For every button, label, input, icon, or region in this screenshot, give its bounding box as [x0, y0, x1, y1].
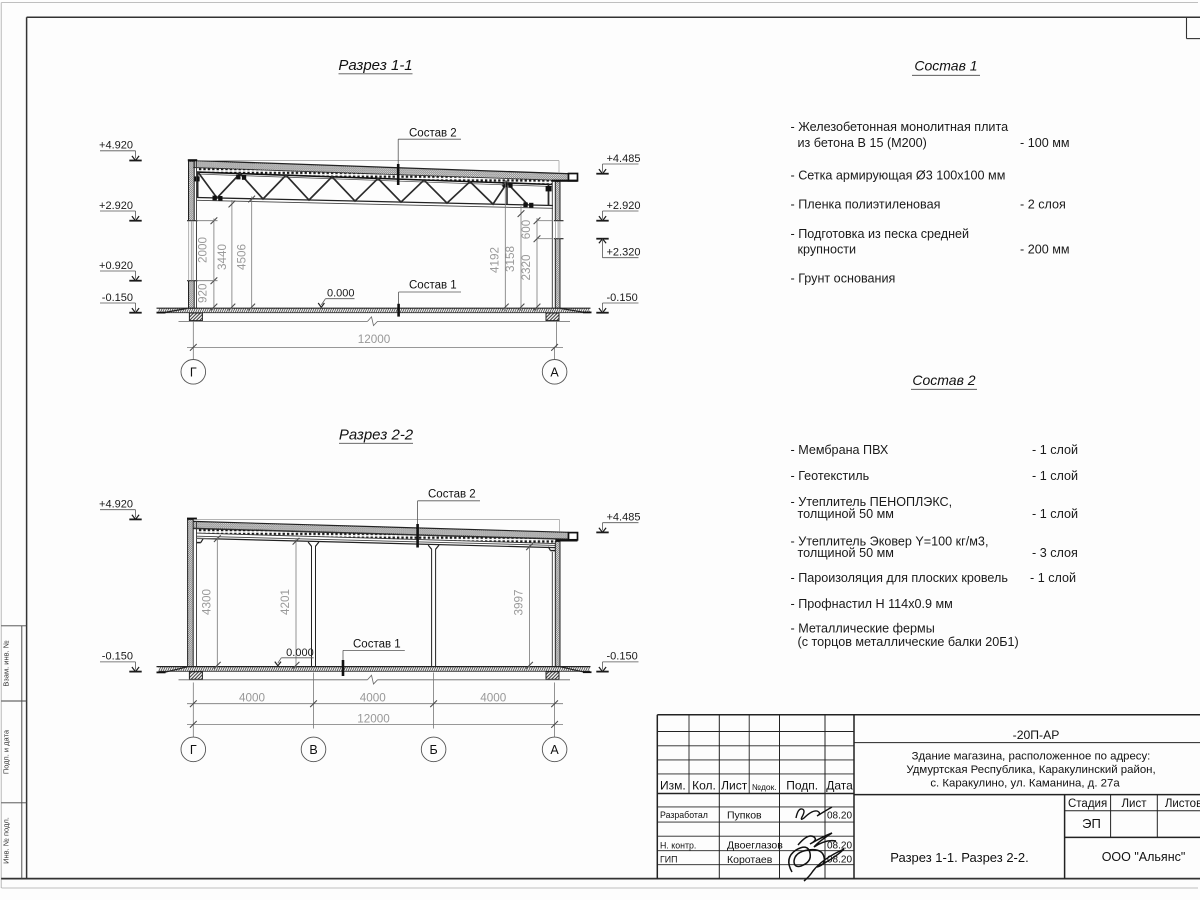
svg-text:Состав 1: Состав 1: [914, 58, 977, 74]
svg-text:+4.920: +4.920: [99, 140, 133, 152]
svg-text:4201: 4201: [279, 589, 292, 615]
svg-text:Б: Б: [429, 743, 437, 757]
svg-text:Состав 2: Состав 2: [409, 127, 457, 139]
svg-text:Лист: Лист: [1122, 798, 1148, 810]
svg-text:Лист: Лист: [721, 778, 748, 792]
svg-text:Г: Г: [190, 366, 197, 380]
svg-text:ООО "Альянс": ООО "Альянс": [1102, 850, 1186, 864]
svg-text:ГИП: ГИП: [660, 854, 677, 864]
svg-text:+2.320: +2.320: [607, 247, 641, 259]
svg-text:- Сетка армирующая Ø3 100х100: - Сетка армирующая Ø3 100х100 мм: [791, 169, 1006, 183]
svg-text:- 100 мм: - 100 мм: [1020, 136, 1070, 150]
svg-text:-0.150: -0.150: [102, 651, 133, 663]
svg-text:Пупков: Пупков: [727, 810, 762, 822]
svg-text:Инв. № подл.: Инв. № подл.: [2, 817, 11, 864]
svg-text:600: 600: [520, 219, 533, 239]
svg-text:920: 920: [197, 283, 210, 303]
svg-text:из бетона В 15 (М200): из бетона В 15 (М200): [791, 136, 927, 150]
svg-text:Разработал: Разработал: [660, 810, 708, 820]
svg-text:Коротаев: Коротаев: [727, 854, 773, 866]
svg-text:- Грунт основания: - Грунт основания: [791, 272, 896, 286]
svg-text:0.000: 0.000: [327, 288, 355, 300]
svg-text:+2.920: +2.920: [607, 200, 641, 212]
svg-text:- 200 мм: - 200 мм: [1020, 243, 1070, 257]
svg-text:- Металлические фермы: - Металлические фермы: [791, 621, 935, 635]
svg-text:крупности: крупности: [791, 243, 857, 257]
svg-text:Двоеглазов: Двоеглазов: [727, 840, 783, 852]
svg-text:- 1 слой: - 1 слой: [1032, 469, 1078, 483]
svg-text:-20П-АР: -20П-АР: [1013, 728, 1060, 742]
svg-text:4192: 4192: [488, 247, 501, 273]
svg-text:+4.485: +4.485: [607, 512, 641, 524]
svg-text:0.000: 0.000: [286, 647, 314, 659]
svg-text:Изм.: Изм.: [660, 778, 686, 792]
svg-text:08.20: 08.20: [827, 841, 852, 852]
svg-text:Стадия: Стадия: [1068, 798, 1107, 810]
svg-text:- 1 слой: - 1 слой: [1032, 507, 1078, 521]
svg-text:-0.150: -0.150: [607, 292, 638, 304]
svg-text:2000: 2000: [197, 237, 210, 264]
svg-text:Листов: Листов: [1165, 798, 1200, 810]
svg-text:Подп.: Подп.: [786, 778, 818, 792]
svg-text:В: В: [309, 743, 317, 757]
svg-text:А: А: [550, 366, 559, 380]
svg-text:толщиной 50 мм: толщиной 50 мм: [791, 507, 894, 521]
svg-text:Разрез 2-2: Разрез 2-2: [339, 427, 414, 444]
svg-text:Состав 1: Состав 1: [353, 638, 401, 650]
svg-text:+0.920: +0.920: [99, 260, 133, 272]
svg-text:12000: 12000: [358, 333, 391, 346]
svg-text:- Профнастил Н 114х0.9 мм: - Профнастил Н 114х0.9 мм: [791, 597, 953, 611]
svg-text:Состав 1: Состав 1: [409, 280, 457, 292]
svg-text:с. Каракулино, ул. Каманина, д: с. Каракулино, ул. Каманина, д. 27а: [930, 778, 1120, 790]
svg-text:-0.150: -0.150: [607, 651, 638, 663]
svg-text:Состав 2: Состав 2: [912, 372, 975, 388]
svg-text:- Подготовка из песка средней: - Подготовка из песка средней: [791, 227, 970, 241]
svg-text:- Мембрана ПВХ: - Мембрана ПВХ: [791, 443, 889, 457]
svg-text:Г: Г: [190, 743, 197, 757]
svg-text:3997: 3997: [513, 589, 526, 615]
svg-text:Состав 2: Состав 2: [428, 489, 476, 501]
svg-text:4000: 4000: [480, 691, 507, 704]
svg-text:- Геотекстиль: - Геотекстиль: [791, 469, 870, 483]
svg-text:- 1 слой: - 1 слой: [1030, 571, 1076, 585]
svg-text:4506: 4506: [236, 244, 249, 270]
svg-text:Взам. инв. №: Взам. инв. №: [2, 640, 11, 686]
svg-text:+4.920: +4.920: [99, 499, 133, 511]
svg-text:толщиной 50 мм: толщиной 50 мм: [791, 546, 894, 560]
svg-text:- Пароизоляция для плоских кро: - Пароизоляция для плоских кровель: [791, 571, 1009, 585]
svg-text:- 3 слоя: - 3 слоя: [1032, 546, 1078, 560]
svg-text:- 2 слоя: - 2 слоя: [1020, 198, 1066, 212]
svg-text:Удмуртская Республика, Каракул: Удмуртская Республика, Каракулинский рай…: [906, 764, 1155, 776]
svg-text:Дата: Дата: [826, 778, 853, 792]
svg-text:А: А: [550, 743, 559, 757]
svg-text:3158: 3158: [504, 246, 517, 272]
svg-text:3440: 3440: [216, 244, 229, 271]
svg-text:12000: 12000: [357, 712, 390, 725]
svg-text:4000: 4000: [239, 691, 266, 704]
svg-text:Кол.: Кол.: [692, 778, 716, 792]
svg-text:Н. контр.: Н. контр.: [660, 840, 696, 850]
svg-text:- 1 слой: - 1 слой: [1032, 443, 1078, 457]
svg-text:08.20: 08.20: [827, 810, 852, 821]
svg-text:Разрез 1-1. Разрез 2-2.: Разрез 1-1. Разрез 2-2.: [890, 850, 1028, 865]
svg-text:4000: 4000: [360, 691, 387, 704]
svg-text:- Железобетонная монолитная п: - Железобетонная монолитная плита: [791, 120, 1009, 134]
svg-text:+2.920: +2.920: [99, 200, 133, 212]
svg-text:+4.485: +4.485: [607, 153, 641, 165]
svg-text:Подп. и дата: Подп. и дата: [2, 729, 11, 774]
svg-text:4300: 4300: [200, 589, 213, 616]
svg-text:Здание магазина, расположенное: Здание магазина, расположенное по адресу…: [912, 751, 1151, 763]
svg-text:-0.150: -0.150: [102, 292, 133, 304]
svg-text:- Пленка полиэтиленовая: - Пленка полиэтиленовая: [791, 198, 941, 212]
svg-text:№док.: №док.: [752, 782, 777, 792]
svg-text:2320: 2320: [520, 254, 533, 281]
svg-text:ЭП: ЭП: [1082, 816, 1101, 831]
svg-text:Разрез 1-1: Разрез 1-1: [338, 57, 412, 74]
svg-text:(с торцов металлические балки: (с торцов металлические балки 20Б1): [791, 635, 1019, 649]
